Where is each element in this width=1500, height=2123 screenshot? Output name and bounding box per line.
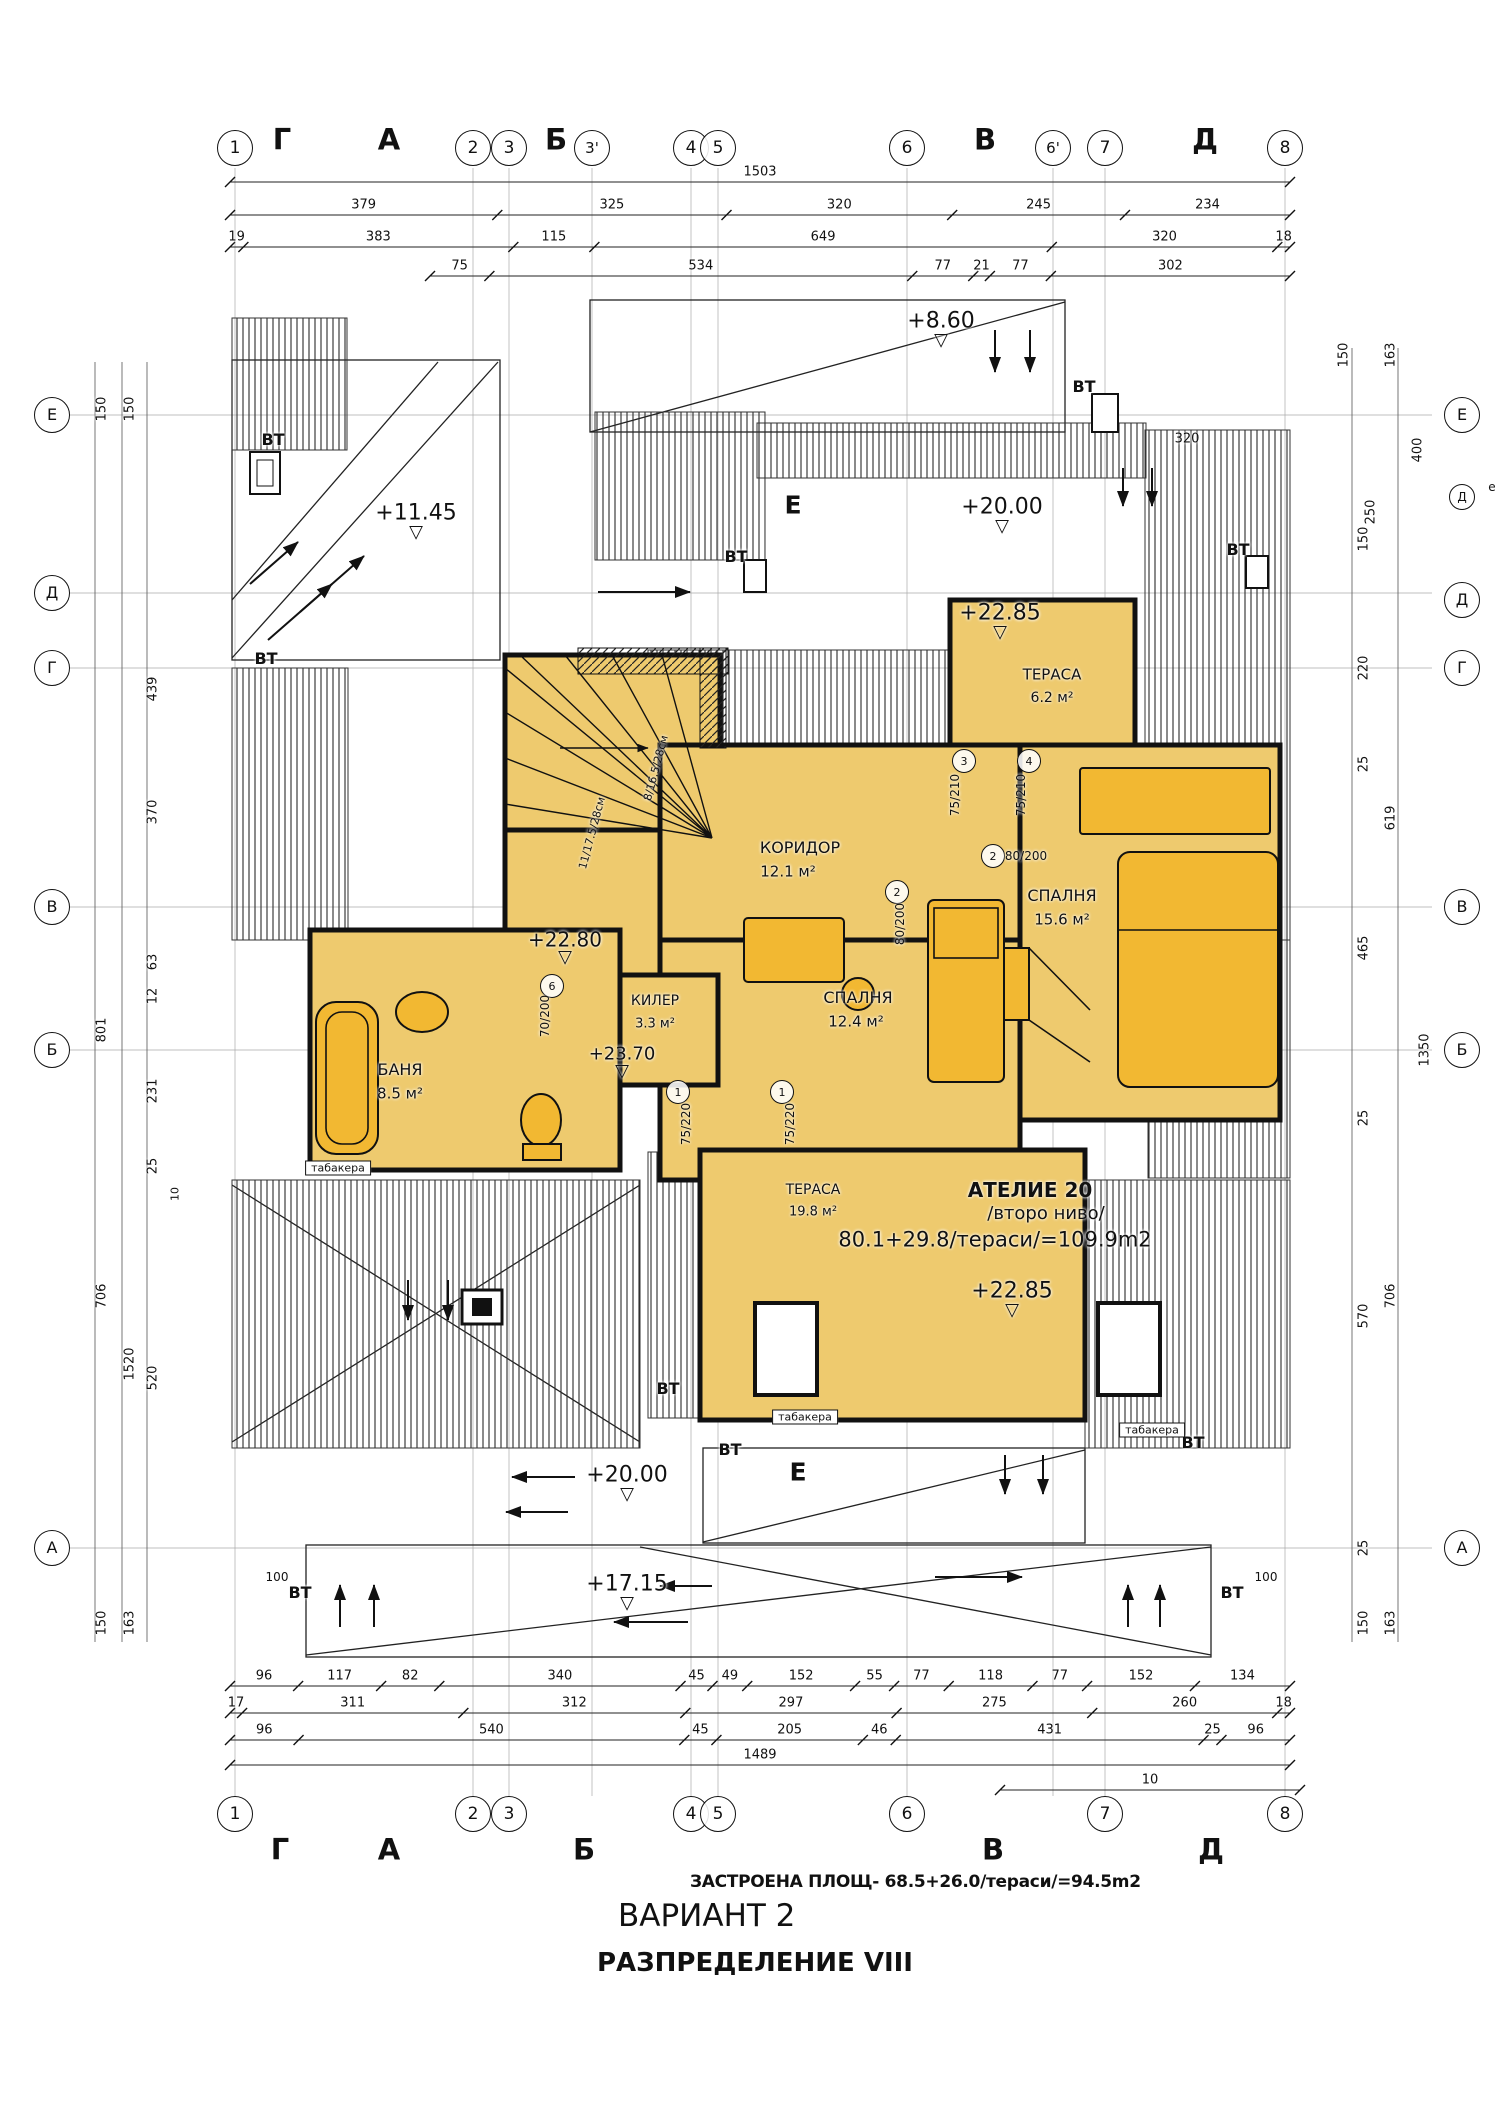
- dim-label: 45: [688, 1670, 705, 1683]
- dim-right: 706: [1385, 1284, 1398, 1309]
- floor-plan-canvas: 1ГА23Б3'456В6'7Д812345678ГАБВДЕДГВБАЕДДГ…: [0, 0, 1500, 2123]
- dim-right: 150: [1358, 1611, 1371, 1636]
- axis-top-3p: 3': [574, 130, 610, 166]
- stair-note: 8/16.5/28см: [642, 734, 670, 802]
- dim-left: 63: [147, 954, 160, 971]
- dim-right: 1350: [1419, 1033, 1432, 1066]
- door-size: 75/210: [949, 774, 961, 816]
- dim-label: 540: [479, 1724, 504, 1737]
- tabakera-label: табакера: [772, 1410, 838, 1425]
- offset-note: 100: [266, 1571, 289, 1583]
- axis-top-letter-d: Д: [1192, 126, 1218, 155]
- dim-left: 163: [124, 1611, 137, 1636]
- door-tag: 3: [952, 749, 976, 773]
- dim-label: 297: [779, 1697, 804, 1710]
- dim-label: 152: [789, 1670, 814, 1683]
- dim-left: 12: [147, 988, 160, 1005]
- room-name-closet: КИЛЕР: [631, 994, 679, 1008]
- tabakera-label: табакера: [305, 1161, 371, 1176]
- elevation-mark: +11.45▽: [375, 503, 456, 542]
- elevation-mark: +22.85▽: [959, 603, 1040, 642]
- dim-label: 49: [722, 1670, 739, 1683]
- room-name-terrace-top: ТЕРАСА: [1023, 668, 1082, 683]
- door-size: 70/200: [539, 995, 551, 1037]
- dim-label: 117: [327, 1670, 352, 1683]
- vent-label: ВТ: [288, 1585, 311, 1601]
- dim-label: 82: [402, 1670, 419, 1683]
- dim-label: 45: [692, 1724, 709, 1737]
- atelier-area-note: 80.1+29.8/тераси/=109.9m2: [838, 1230, 1151, 1251]
- dim-label: 77: [934, 260, 951, 273]
- dim-left: 25: [147, 1158, 160, 1175]
- atelier-title: АТЕЛИЕ 20: [968, 1180, 1093, 1200]
- axis-top-7: 7: [1087, 130, 1123, 166]
- vent-label: ВТ: [254, 651, 277, 667]
- axis-left-d: Д: [34, 575, 70, 611]
- dim-label: 205: [777, 1724, 802, 1737]
- dim-right: 150: [1358, 527, 1371, 552]
- door-tag: 1: [666, 1080, 690, 1104]
- dim-right: 163: [1385, 1611, 1398, 1636]
- elevation-mark: +8.60▽: [907, 311, 974, 350]
- elevation-mark: +22.85▽: [971, 1281, 1052, 1320]
- elevation-triangle-icon: ▽: [934, 332, 948, 350]
- dim-right: 619: [1385, 806, 1398, 831]
- axis-bottom-letter-a: А: [378, 1836, 400, 1865]
- dim-label: 379: [351, 199, 376, 212]
- dim-label: 46: [871, 1724, 888, 1737]
- dim-label: 302: [1158, 260, 1183, 273]
- dim-label: 311: [340, 1697, 365, 1710]
- door-tag: 4: [1017, 749, 1041, 773]
- dim-left: 520: [147, 1366, 160, 1391]
- dim-label: 18: [1275, 231, 1292, 244]
- axis-top-letter-g: Г: [273, 126, 291, 155]
- room-area-terrace-bottom: 19.8 м²: [789, 1206, 837, 1219]
- dim-label: 77: [1012, 260, 1029, 273]
- axis-bottom-letter-d: Д: [1198, 1836, 1224, 1865]
- room-name-terrace-bottom: ТЕРАСА: [786, 1183, 841, 1197]
- dim-label: 320: [1152, 231, 1177, 244]
- dim-label: 245: [1026, 199, 1051, 212]
- elevation-triangle-icon: ▽: [620, 1595, 634, 1613]
- elevation-mark: +22.80▽: [528, 930, 602, 967]
- door-tag: 2: [885, 880, 909, 904]
- axis-top-5: 5: [700, 130, 736, 166]
- door-size: 75/220: [680, 1103, 692, 1145]
- axis-right-d: Д: [1444, 582, 1480, 618]
- dim-label: 96: [1247, 1724, 1264, 1737]
- variant-title: ВАРИАНТ 2: [618, 1898, 795, 1934]
- dim-right: 150: [1338, 343, 1351, 368]
- dim-label: 383: [366, 231, 391, 244]
- axis-bottom-7: 7: [1087, 1796, 1123, 1832]
- dim-label: 134: [1230, 1670, 1255, 1683]
- axis-left-e: Е: [34, 397, 70, 433]
- elevation-triangle-icon: ▽: [620, 1486, 634, 1504]
- dim-label: 18: [1275, 1697, 1292, 1710]
- room-name-bedroom-center: СПАЛНЯ: [823, 990, 892, 1006]
- vent-label: ВТ: [1181, 1435, 1204, 1451]
- dim-label: 10: [1142, 1774, 1159, 1787]
- axis-top-6p: 6': [1035, 130, 1071, 166]
- axis-bottom-1: 1: [217, 1796, 253, 1832]
- vent-label: ВТ: [656, 1381, 679, 1397]
- door-size: 75/220: [784, 1103, 796, 1145]
- section-mark: Е: [784, 493, 801, 518]
- axis-right-d2: Д: [1449, 484, 1475, 510]
- elevation-triangle-icon: ▽: [1005, 1302, 1019, 1320]
- dim-label: 1503: [743, 166, 776, 179]
- vent-label: ВТ: [724, 549, 747, 565]
- axis-top-letter-b: Б: [545, 126, 567, 155]
- axis-top-8: 8: [1267, 130, 1303, 166]
- door-size: 80/200: [1005, 850, 1047, 862]
- stair-note: 11/17.5/28см: [577, 796, 607, 871]
- dim-left: 231: [147, 1079, 160, 1104]
- axis-left-v: В: [34, 889, 70, 925]
- axis-bottom-letter-b: Б: [573, 1836, 595, 1865]
- dim-right: 25: [1358, 756, 1371, 773]
- axis-bottom-2: 2: [455, 1796, 491, 1832]
- room-area-corridor: 12.1 м²: [760, 865, 816, 880]
- dim-label: 275: [982, 1697, 1007, 1710]
- axis-right-a: А: [1444, 1530, 1480, 1566]
- elevation-triangle-icon: ▽: [995, 518, 1009, 536]
- dim-label: 152: [1129, 1670, 1154, 1683]
- axis-right-g: Г: [1444, 650, 1480, 686]
- elevation-mark: +17.15▽: [586, 1574, 667, 1613]
- labels-layer: 1ГА23Б3'456В6'7Д812345678ГАБВДЕДГВБАЕДДГ…: [0, 0, 1500, 2123]
- elevation-triangle-icon: ▽: [615, 1063, 629, 1081]
- dim-label: 96: [256, 1724, 273, 1737]
- elevation-triangle-icon: ▽: [409, 524, 423, 542]
- dim-right: 400: [1412, 438, 1425, 463]
- dim-label: 115: [541, 231, 566, 244]
- axis-top-2: 2: [455, 130, 491, 166]
- dim-right: 465: [1358, 936, 1371, 961]
- built-area-note: ЗАСТРОЕНА ПЛОЩ- 68.5+26.0/тераси/=94.5m2: [690, 1872, 1141, 1892]
- dim-left: 706: [96, 1284, 109, 1309]
- axis-top-6: 6: [889, 130, 925, 166]
- dim-label: 431: [1037, 1724, 1062, 1737]
- axis-bottom-letter-v: В: [982, 1836, 1004, 1865]
- door-size: 75/210: [1015, 774, 1027, 816]
- axis-top-3: 3: [491, 130, 527, 166]
- dim-left: 150: [96, 397, 109, 422]
- dim-right: 25: [1358, 1540, 1371, 1557]
- dim-label: 55: [866, 1670, 883, 1683]
- axis-bottom-5: 5: [700, 1796, 736, 1832]
- dim-right: 570: [1358, 1304, 1371, 1329]
- dim-label: 320: [827, 199, 852, 212]
- dim-label: 260: [1172, 1697, 1197, 1710]
- axis-top-letter-a: А: [378, 126, 400, 155]
- axis-right-e: Е: [1444, 397, 1480, 433]
- vent-label: ВТ: [1220, 1585, 1243, 1601]
- elevation-triangle-icon: ▽: [993, 624, 1007, 642]
- axis-left-a: А: [34, 1530, 70, 1566]
- axis-right-b: Б: [1444, 1032, 1480, 1068]
- dim-label: 77: [1051, 1670, 1068, 1683]
- dim-left: 370: [147, 800, 160, 825]
- room-name-bedroom-right: СПАЛНЯ: [1027, 888, 1096, 904]
- room-name-corridor: КОРИДОР: [760, 840, 840, 856]
- elevation-mark: +23.70▽: [589, 1046, 656, 1081]
- axis-left-b: Б: [34, 1032, 70, 1068]
- room-area-bedroom-center: 12.4 м²: [828, 1015, 884, 1030]
- offset-note: 100: [1255, 1571, 1278, 1583]
- axis-right-v: В: [1444, 889, 1480, 925]
- dim-right: 25: [1358, 1110, 1371, 1127]
- dim-left: 801: [96, 1018, 109, 1043]
- dim-label: 21: [973, 260, 990, 273]
- section-mark: Е: [789, 1460, 806, 1485]
- dim-right: 220: [1358, 656, 1371, 681]
- vent-label: ВТ: [718, 1442, 741, 1458]
- room-name-bath: БАНЯ: [377, 1062, 422, 1078]
- axis-bottom-6: 6: [889, 1796, 925, 1832]
- dim-label: 312: [562, 1697, 587, 1710]
- elevation-mark: +20.00▽: [586, 1465, 667, 1504]
- dim-label: 96: [256, 1670, 273, 1683]
- axis-bottom-3: 3: [491, 1796, 527, 1832]
- dim-label: 1489: [743, 1749, 776, 1762]
- atelier-level-note: /второ ниво/: [987, 1205, 1104, 1223]
- dim-label: 118: [978, 1670, 1003, 1683]
- door-tag: 2: [981, 844, 1005, 868]
- door-tag: 1: [770, 1080, 794, 1104]
- elevation-mark: +20.00▽: [961, 497, 1042, 536]
- axis-bottom-8: 8: [1267, 1796, 1303, 1832]
- dim-right: 250: [1365, 500, 1378, 525]
- dim-label: 25: [1204, 1724, 1221, 1737]
- elevation-triangle-icon: ▽: [558, 949, 572, 967]
- room-area-bath: 8.5 м²: [377, 1087, 423, 1102]
- dim-label: 19: [228, 231, 245, 244]
- room-area-closet: 3.3 м²: [635, 1018, 675, 1031]
- room-area-terrace-top: 6.2 м²: [1031, 691, 1074, 705]
- dim-left: 10: [170, 1187, 181, 1201]
- dim-left: 1520: [124, 1347, 137, 1380]
- axis-bottom-letter-g: Г: [271, 1836, 289, 1865]
- dim-left: 439: [147, 677, 160, 702]
- vent-label: ВТ: [1226, 542, 1249, 558]
- dim-label: 534: [688, 260, 713, 273]
- layout-title: РАЗПРЕДЕЛЕНИЕ VIII: [597, 1948, 913, 1978]
- room-area-bedroom-right: 15.6 м²: [1034, 913, 1090, 928]
- dim-label: 649: [811, 231, 836, 244]
- axis-top-letter-v: В: [974, 126, 996, 155]
- axis-top-1: 1: [217, 130, 253, 166]
- vent-label: ВТ: [261, 432, 284, 448]
- dim-label: 75: [451, 260, 468, 273]
- dim-label: 325: [599, 199, 624, 212]
- dim-left: 150: [96, 1611, 109, 1636]
- axis-right-note: е: [1488, 481, 1495, 493]
- dim-right: 320: [1175, 433, 1200, 446]
- dim-label: 234: [1195, 199, 1220, 212]
- axis-left-g: Г: [34, 650, 70, 686]
- dim-label: 340: [547, 1670, 572, 1683]
- dim-right: 163: [1385, 343, 1398, 368]
- dim-label: 77: [913, 1670, 930, 1683]
- tabakera-label: табакера: [1119, 1423, 1185, 1438]
- vent-label: ВТ: [1072, 379, 1095, 395]
- dim-label: 17: [228, 1697, 245, 1710]
- dim-left: 150: [124, 397, 137, 422]
- door-size: 80/200: [894, 903, 906, 945]
